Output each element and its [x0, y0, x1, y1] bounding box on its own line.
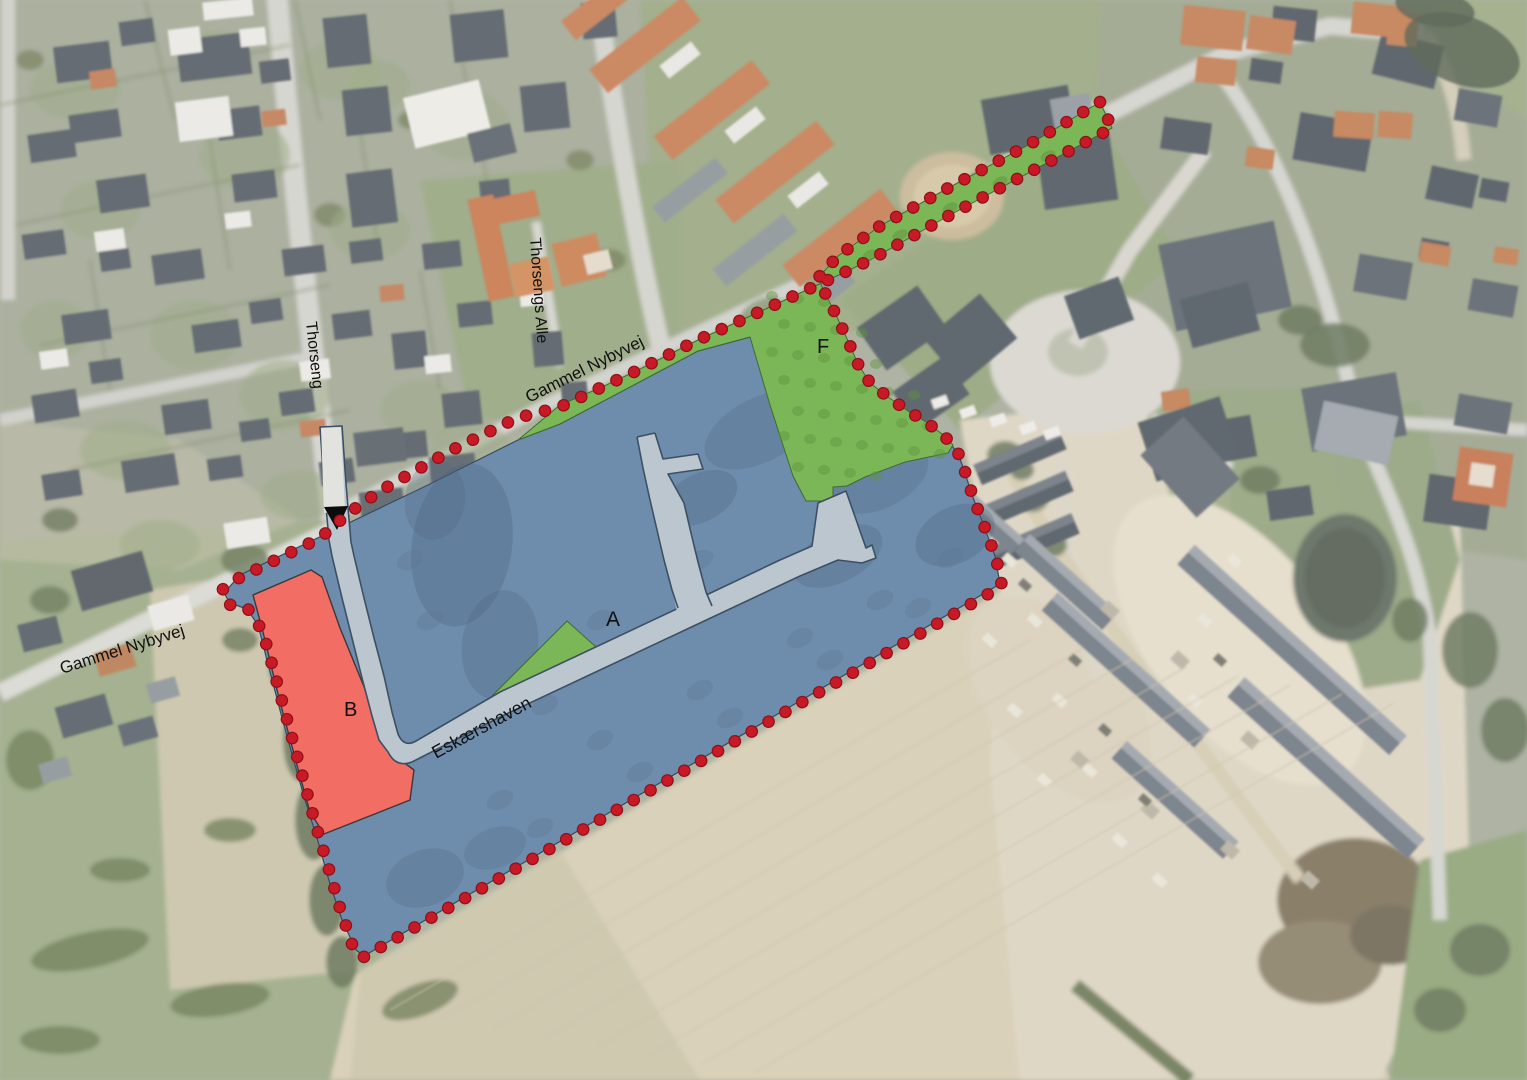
svg-text:B: B	[344, 699, 357, 721]
svg-text:A: A	[606, 608, 620, 631]
svg-text:F: F	[817, 336, 829, 358]
